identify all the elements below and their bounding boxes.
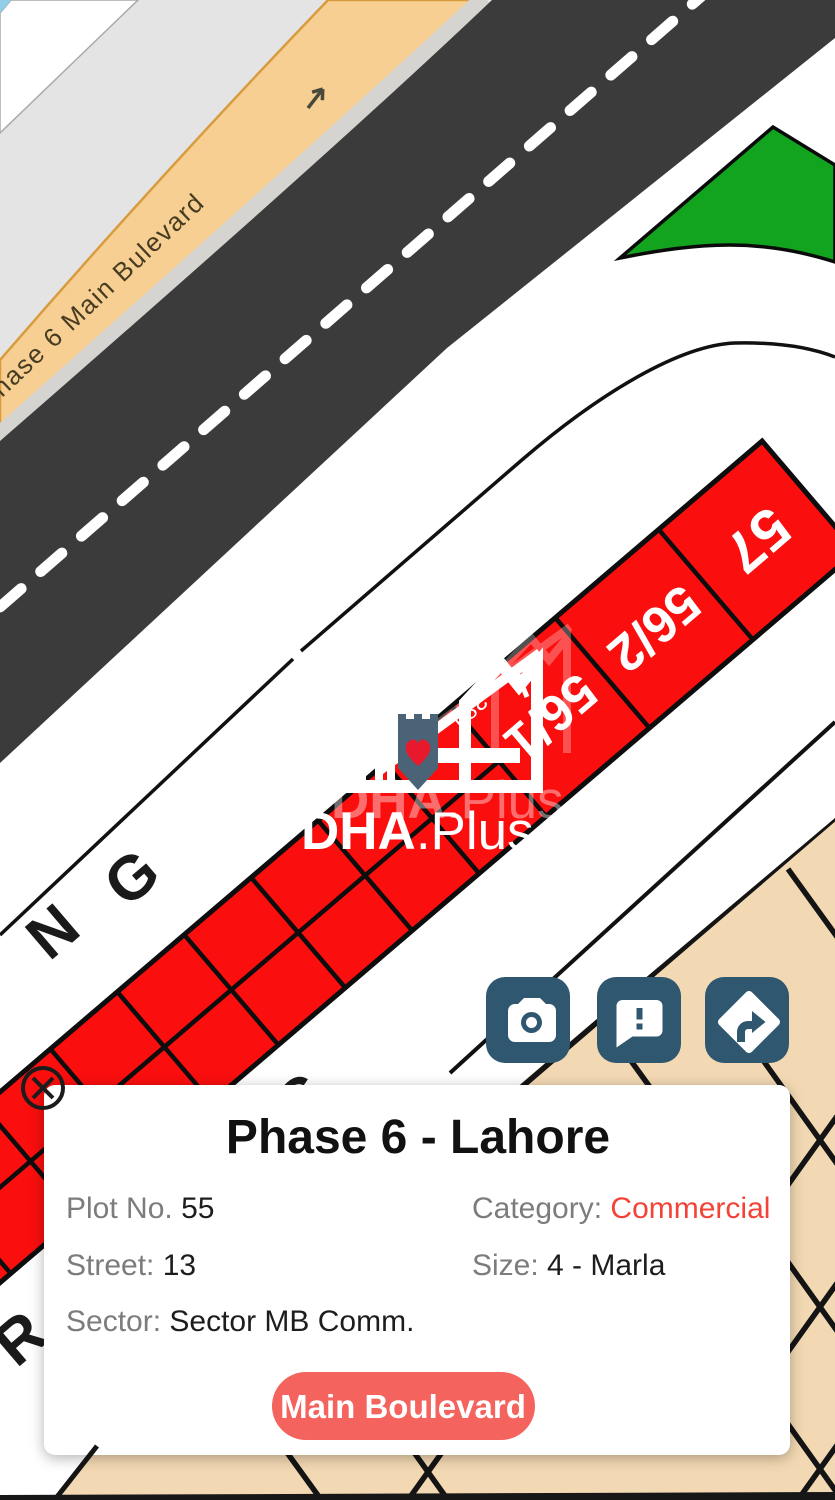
svg-text:Street: 13: Street: 13	[66, 1249, 196, 1282]
svg-text:Main Boulevard: Main Boulevard	[280, 1388, 526, 1425]
svg-text:Sector: Sector MB Comm.: Sector: Sector MB Comm.	[66, 1305, 414, 1338]
svg-text:Phase 6 - Lahore: Phase 6 - Lahore	[226, 1111, 610, 1164]
svg-text:Category: Commercial: Category: Commercial	[472, 1192, 770, 1225]
svg-text:Size: 4 - Marla: Size: 4 - Marla	[472, 1249, 666, 1282]
svg-text:Plot No. 55: Plot No. 55	[66, 1192, 214, 1225]
svg-text:DHA.Plus: DHA.Plus	[301, 802, 534, 861]
